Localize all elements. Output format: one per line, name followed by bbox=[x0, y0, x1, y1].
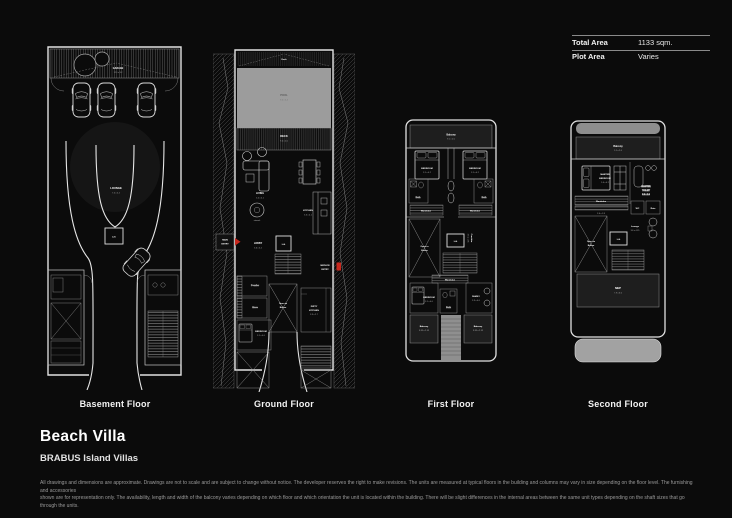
corridor-dims: 3.6 x 1.35 bbox=[466, 234, 468, 244]
lounge-dims: 7.5 x 5.2 bbox=[112, 193, 121, 195]
balcony bbox=[410, 315, 438, 343]
ground-floor-label: Ground Floor bbox=[214, 399, 354, 409]
lower-roof-canopy bbox=[575, 339, 661, 362]
garage-label: GARAGE bbox=[113, 67, 124, 70]
car-icon bbox=[137, 83, 156, 117]
main-entry-label-1: MAIN bbox=[222, 239, 228, 242]
cabinet-icon bbox=[614, 166, 626, 190]
armchair-icon bbox=[243, 152, 252, 161]
balcony-dims: 9.1 x 2.0 bbox=[447, 139, 456, 141]
deck bbox=[237, 128, 331, 150]
lobby-dims: 3.6 x 3.2 bbox=[254, 248, 263, 250]
total-area-value: 1133 sqm. bbox=[638, 39, 672, 47]
wardrobe1-label: Wardrobe bbox=[421, 211, 432, 213]
deck-label: DECK bbox=[280, 134, 288, 138]
car-icon bbox=[72, 83, 91, 117]
garage-court: GARAGE 12.9 x 3.2 bbox=[50, 49, 179, 91]
balcony1-dims: 3.85 x 2.35 bbox=[419, 330, 430, 332]
open-below-label-2: Below bbox=[588, 245, 595, 247]
bed-icon bbox=[415, 151, 439, 179]
balcony2-dims: 3.85 x 2.35 bbox=[473, 330, 484, 332]
first-floor-plan: Balcony 9.1 x 2.0 BEDROOM 3.1 x 4.2 BEDR… bbox=[404, 113, 498, 369]
tree-icon bbox=[95, 52, 109, 66]
ground-floor-plan: Deck POOL 9.4 x 5.4 DECK 9.4 x 2.0 LIVIN… bbox=[213, 48, 355, 392]
disclaimer: All drawings and dimensions are approxim… bbox=[40, 480, 696, 510]
artwork-sculpture: artwork bbox=[250, 203, 264, 222]
open-to-below-void: Open to Below bbox=[409, 219, 440, 277]
dirty-kitchen-label-1: DIRTY bbox=[311, 306, 318, 308]
lounge-dims: 3.6 x 4.35 bbox=[631, 230, 641, 232]
stairs bbox=[301, 346, 331, 368]
villa-name: Beach Villa bbox=[40, 428, 138, 446]
bedroom-dims: 3.1 x 4.0 bbox=[257, 335, 266, 337]
bath-left: Bath bbox=[409, 179, 428, 203]
corridor-label: Corridor bbox=[470, 234, 472, 243]
living-area bbox=[243, 148, 321, 192]
total-area-row: Total Area 1133 sqm. bbox=[572, 35, 710, 50]
powder-store-rooms: Powder Store bbox=[237, 276, 267, 318]
open-below-label-1: Open to bbox=[279, 302, 288, 305]
master-toilet-dims: 3.3 x 2.6 bbox=[642, 194, 651, 196]
bedroom3-dims: 3.1 x 4.0 bbox=[425, 301, 434, 303]
wardrobe-label: Wardrobe bbox=[596, 201, 607, 203]
coffee-table-icon bbox=[246, 174, 254, 182]
lounge-label: LOUNGE bbox=[110, 186, 122, 190]
balcony-label: Balcony bbox=[613, 145, 623, 148]
entry-arrow-icon bbox=[235, 238, 241, 246]
left-wing-rooms bbox=[48, 270, 92, 365]
basement-floor-label: Basement Floor bbox=[45, 399, 185, 409]
dirty-kitchen-dims: 3.3 x 2.7 bbox=[310, 314, 319, 316]
mep-dims: 7.9 x 3.6 bbox=[614, 293, 623, 295]
ramp-exit bbox=[237, 332, 331, 392]
villa-subtitle: BRABUS Island Villas bbox=[40, 453, 138, 464]
open-below-label-1: Open to bbox=[587, 240, 596, 243]
center-corridor bbox=[448, 148, 454, 203]
bath-center: Bath bbox=[440, 289, 457, 313]
bath3-label: Bath bbox=[446, 306, 452, 309]
second-floor-label: Second Floor bbox=[548, 399, 688, 409]
pool bbox=[237, 68, 331, 128]
mep-label: MEP bbox=[615, 286, 621, 290]
bed-icon bbox=[239, 324, 252, 342]
service-entry: SERVICE ENTRY bbox=[320, 263, 341, 272]
wc-label: WC bbox=[636, 208, 640, 210]
sofa-icon bbox=[243, 161, 269, 170]
parked-cars bbox=[72, 83, 156, 117]
bathtub-icon bbox=[634, 166, 643, 187]
master-bedroom-dims: 5.4 x 4.2 bbox=[601, 182, 610, 184]
master-toilet-label-2: TOILET bbox=[642, 190, 650, 192]
armchair-icon bbox=[649, 218, 657, 226]
bath1-label: Bath bbox=[416, 196, 422, 199]
bed-icon bbox=[463, 151, 487, 179]
balcony1-label: Balcony bbox=[420, 326, 429, 328]
title-block: Beach Villa BRABUS Island Villas bbox=[40, 428, 138, 464]
balcony-dims: 9.1 x 2.6 bbox=[614, 150, 623, 152]
armchair-icon bbox=[484, 288, 490, 294]
rain-label: Rain bbox=[651, 208, 656, 210]
kitchen-label: KITCHEN bbox=[303, 210, 313, 212]
wardrobe-dims: 3.6 x 1.8 bbox=[597, 213, 606, 215]
balcony bbox=[464, 315, 492, 343]
bedroom1-dims: 3.1 x 4.2 bbox=[423, 172, 432, 174]
bath-right: Bath bbox=[474, 179, 493, 203]
open-to-below-void: Open to Below bbox=[575, 216, 607, 272]
bedroom1-label: BEDROOM bbox=[421, 168, 433, 170]
lounge-area: Lounge 3.6 x 4.35 bbox=[631, 218, 657, 238]
entry-marker-icon bbox=[337, 263, 342, 271]
artwork-label: artwork bbox=[254, 219, 261, 222]
balcony2-label: Balcony bbox=[474, 326, 483, 328]
dining-table-icon bbox=[303, 160, 316, 184]
deck-top: Deck bbox=[237, 52, 331, 66]
second-floor-plan: Balcony 9.1 x 2.6 MASTER BEDROOM 5.4 x 4… bbox=[568, 112, 668, 368]
plot-area-row: Plot Area Varies bbox=[572, 50, 710, 65]
ramp-void: Open to Below bbox=[269, 284, 297, 332]
roof-canopy bbox=[576, 123, 660, 134]
pool-label: POOL bbox=[280, 93, 288, 97]
balcony bbox=[410, 125, 492, 148]
first-floor-label: First Floor bbox=[381, 399, 521, 409]
dirty-kitchen: DIRTY KITCHEN 3.3 x 2.7 bbox=[301, 288, 331, 332]
turntable-area bbox=[70, 122, 160, 212]
kitchen-area bbox=[313, 192, 331, 234]
family-label: FAMILY bbox=[472, 295, 480, 298]
open-below-label-1: Open to bbox=[420, 245, 429, 248]
deck-dims: 9.4 x 2.0 bbox=[280, 141, 289, 143]
sofa-icon bbox=[259, 161, 269, 191]
disclaimer-line-1: All drawings and dimensions are approxim… bbox=[40, 480, 696, 495]
open-below-label-2: Below bbox=[280, 307, 287, 309]
bedroom-gf: BEDROOM 3.1 x 4.0 bbox=[237, 320, 271, 350]
total-area-label: Total Area bbox=[572, 39, 638, 47]
bedroom2-label: BEDROOM bbox=[469, 168, 481, 170]
disclaimer-line-2: shown are for representation only. The a… bbox=[40, 495, 696, 510]
bedroom-label: BEDROOM bbox=[255, 331, 267, 333]
right-wing-stairs bbox=[137, 270, 181, 365]
lift-label: Lift bbox=[454, 240, 458, 243]
master-toilet-label-1: MASTER bbox=[641, 185, 651, 188]
wardrobe3-label: Wardrobe bbox=[445, 280, 456, 282]
area-info-table: Total Area 1133 sqm. Plot Area Varies bbox=[572, 35, 710, 64]
master-bedroom-label-1: MASTER bbox=[600, 173, 610, 176]
wardrobe2-label: Wardrobe bbox=[470, 211, 481, 213]
main-entry: MAIN ENTRY bbox=[216, 234, 241, 250]
open-below-label-2: Below bbox=[421, 250, 428, 252]
main-entry-label-2: ENTRY bbox=[221, 244, 229, 246]
bath2-label: Bath bbox=[482, 196, 488, 199]
tree-icon bbox=[74, 54, 96, 76]
basement-floor-plan: GARAGE 12.9 x 3.2 bbox=[46, 45, 184, 390]
lift-label: Lift bbox=[112, 236, 116, 239]
floor-plan-sheet: Total Area 1133 sqm. Plot Area Varies bbox=[0, 0, 732, 518]
lift-label: Lift bbox=[282, 243, 286, 246]
plot-area-value: Varies bbox=[638, 53, 659, 61]
master-bedroom-label-2: BEDROOM bbox=[599, 178, 611, 180]
dirty-kitchen-label-2: KITCHEN bbox=[309, 310, 319, 312]
family-dims: 3.3 x 4.0 bbox=[472, 300, 481, 302]
lounge-label: Lounge bbox=[631, 226, 640, 228]
service-entry-label-2: ENTRY bbox=[321, 269, 329, 271]
car-icon bbox=[120, 245, 153, 279]
mep-zone bbox=[577, 274, 659, 307]
living-label: LIVING bbox=[256, 192, 264, 195]
kitchen-dims: 3.3 x 4.1 bbox=[304, 215, 313, 217]
plot-area-label: Plot Area bbox=[572, 53, 638, 61]
exterior-stair bbox=[441, 315, 461, 360]
store-label: Store bbox=[252, 306, 258, 309]
balcony bbox=[576, 137, 660, 159]
garage-dims: 12.9 x 3.2 bbox=[114, 72, 124, 74]
service-entry-label-1: SERVICE bbox=[320, 265, 330, 267]
corridor-label-group: Corridor 3.6 x 1.35 bbox=[466, 234, 472, 244]
bed-icon bbox=[412, 287, 424, 304]
family-room: FAMILY 3.3 x 4.0 bbox=[466, 283, 492, 313]
balcony-label: Balcony bbox=[446, 134, 456, 137]
pool-dims: 9.4 x 5.4 bbox=[280, 100, 289, 102]
car-icon bbox=[97, 83, 116, 117]
armchair-icon bbox=[484, 300, 490, 306]
powder-label: Powder bbox=[251, 285, 259, 287]
lift-label: Lift bbox=[617, 238, 621, 241]
living-dims: 5.5 x 5.1 bbox=[256, 198, 265, 200]
deck-top-label: Deck bbox=[281, 59, 287, 61]
bedroom3-label: BEDROOM bbox=[423, 297, 435, 299]
bedroom2-dims: 3.1 x 4.2 bbox=[471, 172, 480, 174]
master-toilet: MASTER TOILET 3.3 x 2.6 bbox=[630, 162, 656, 204]
lobby-label: LOBBY bbox=[254, 242, 263, 245]
bedroom-lower: BEDROOM 3.1 x 4.0 bbox=[410, 283, 438, 313]
